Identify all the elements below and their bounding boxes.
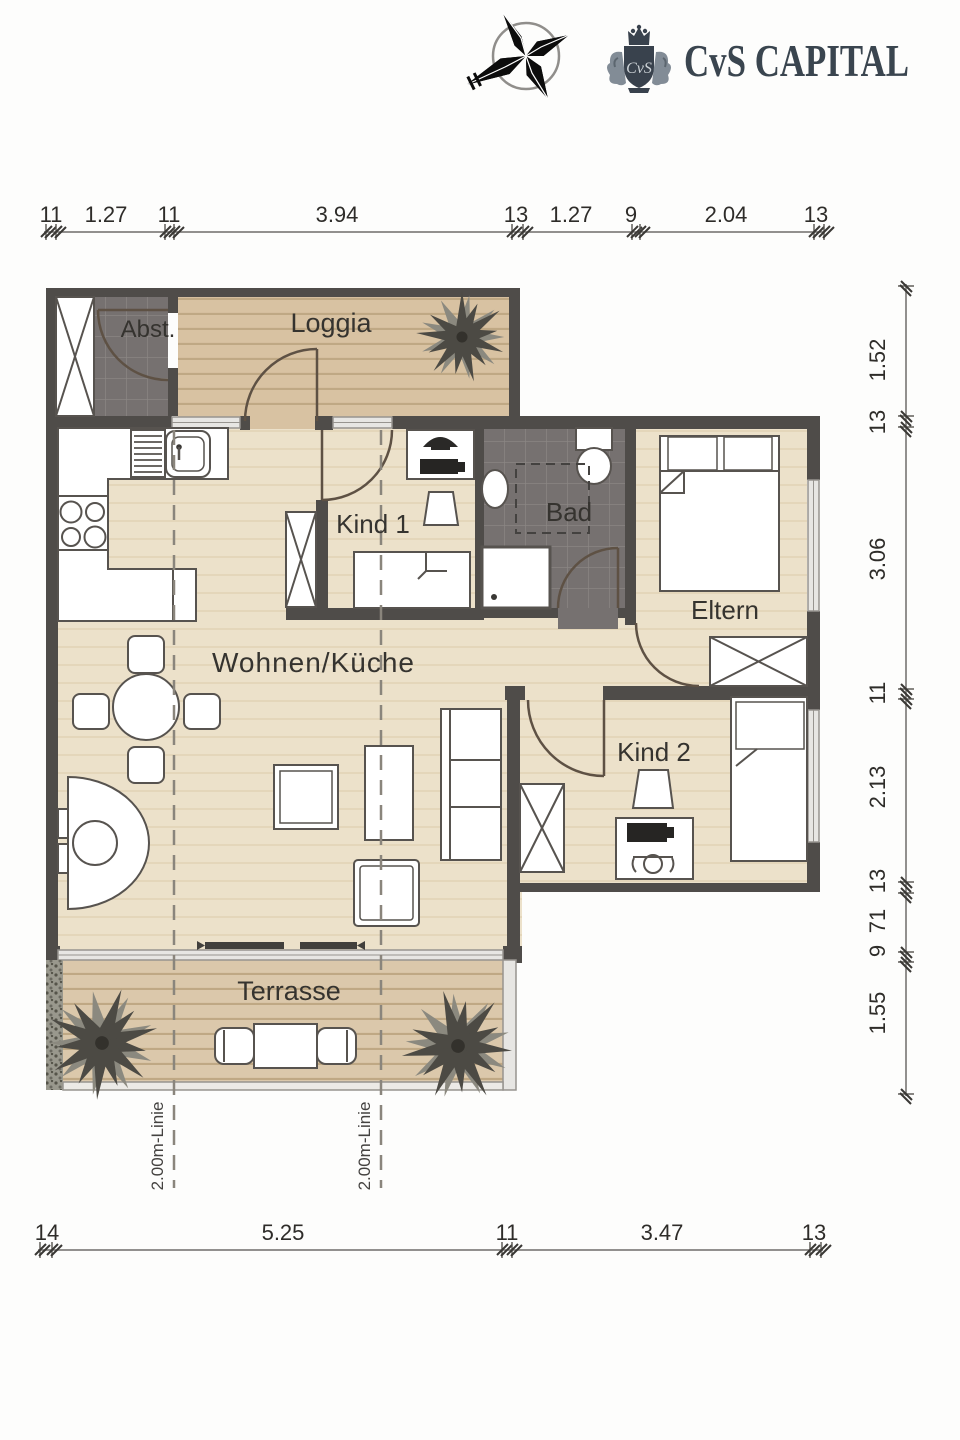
svg-text:11: 11 <box>40 202 63 227</box>
svg-text:Bad: Bad <box>546 497 592 527</box>
svg-text:1.27: 1.27 <box>550 202 593 227</box>
svg-text:13: 13 <box>865 410 890 434</box>
svg-text:13: 13 <box>802 1220 826 1245</box>
svg-text:Abst.: Abst. <box>121 316 176 343</box>
svg-text:2.13: 2.13 <box>865 766 890 809</box>
svg-text:11: 11 <box>158 202 181 227</box>
svg-text:3.47: 3.47 <box>641 1220 684 1245</box>
svg-text:1.27: 1.27 <box>85 202 128 227</box>
svg-text:3.06: 3.06 <box>865 538 890 581</box>
svg-text:2.00m-Linie: 2.00m-Linie <box>148 1102 167 1191</box>
svg-text:CvS CAPITAL: CvS CAPITAL <box>684 35 909 86</box>
svg-text:14: 14 <box>35 1220 59 1245</box>
svg-text:2.04: 2.04 <box>705 202 748 227</box>
svg-text:Eltern: Eltern <box>691 595 759 625</box>
svg-text:Loggia: Loggia <box>290 308 372 338</box>
svg-text:13: 13 <box>865 869 890 893</box>
svg-text:11: 11 <box>496 1220 519 1245</box>
svg-text:5.25: 5.25 <box>262 1220 305 1245</box>
svg-text:13: 13 <box>804 202 828 227</box>
svg-text:11: 11 <box>865 682 890 705</box>
svg-text:13: 13 <box>504 202 528 227</box>
svg-text:1.52: 1.52 <box>865 339 890 382</box>
svg-text:CvS: CvS <box>626 60 652 77</box>
svg-text:2.00m-Linie: 2.00m-Linie <box>355 1102 374 1191</box>
svg-text:3.94: 3.94 <box>316 202 359 227</box>
svg-text:9: 9 <box>865 945 890 957</box>
svg-text:Kind 2: Kind 2 <box>617 737 691 767</box>
svg-text:Terrasse: Terrasse <box>237 976 341 1006</box>
svg-text:Kind 1: Kind 1 <box>336 509 410 539</box>
svg-text:Wohnen/Küche: Wohnen/Küche <box>212 647 414 678</box>
svg-text:9: 9 <box>625 202 637 227</box>
svg-text:1.55: 1.55 <box>865 992 890 1035</box>
svg-text:71: 71 <box>865 909 890 933</box>
